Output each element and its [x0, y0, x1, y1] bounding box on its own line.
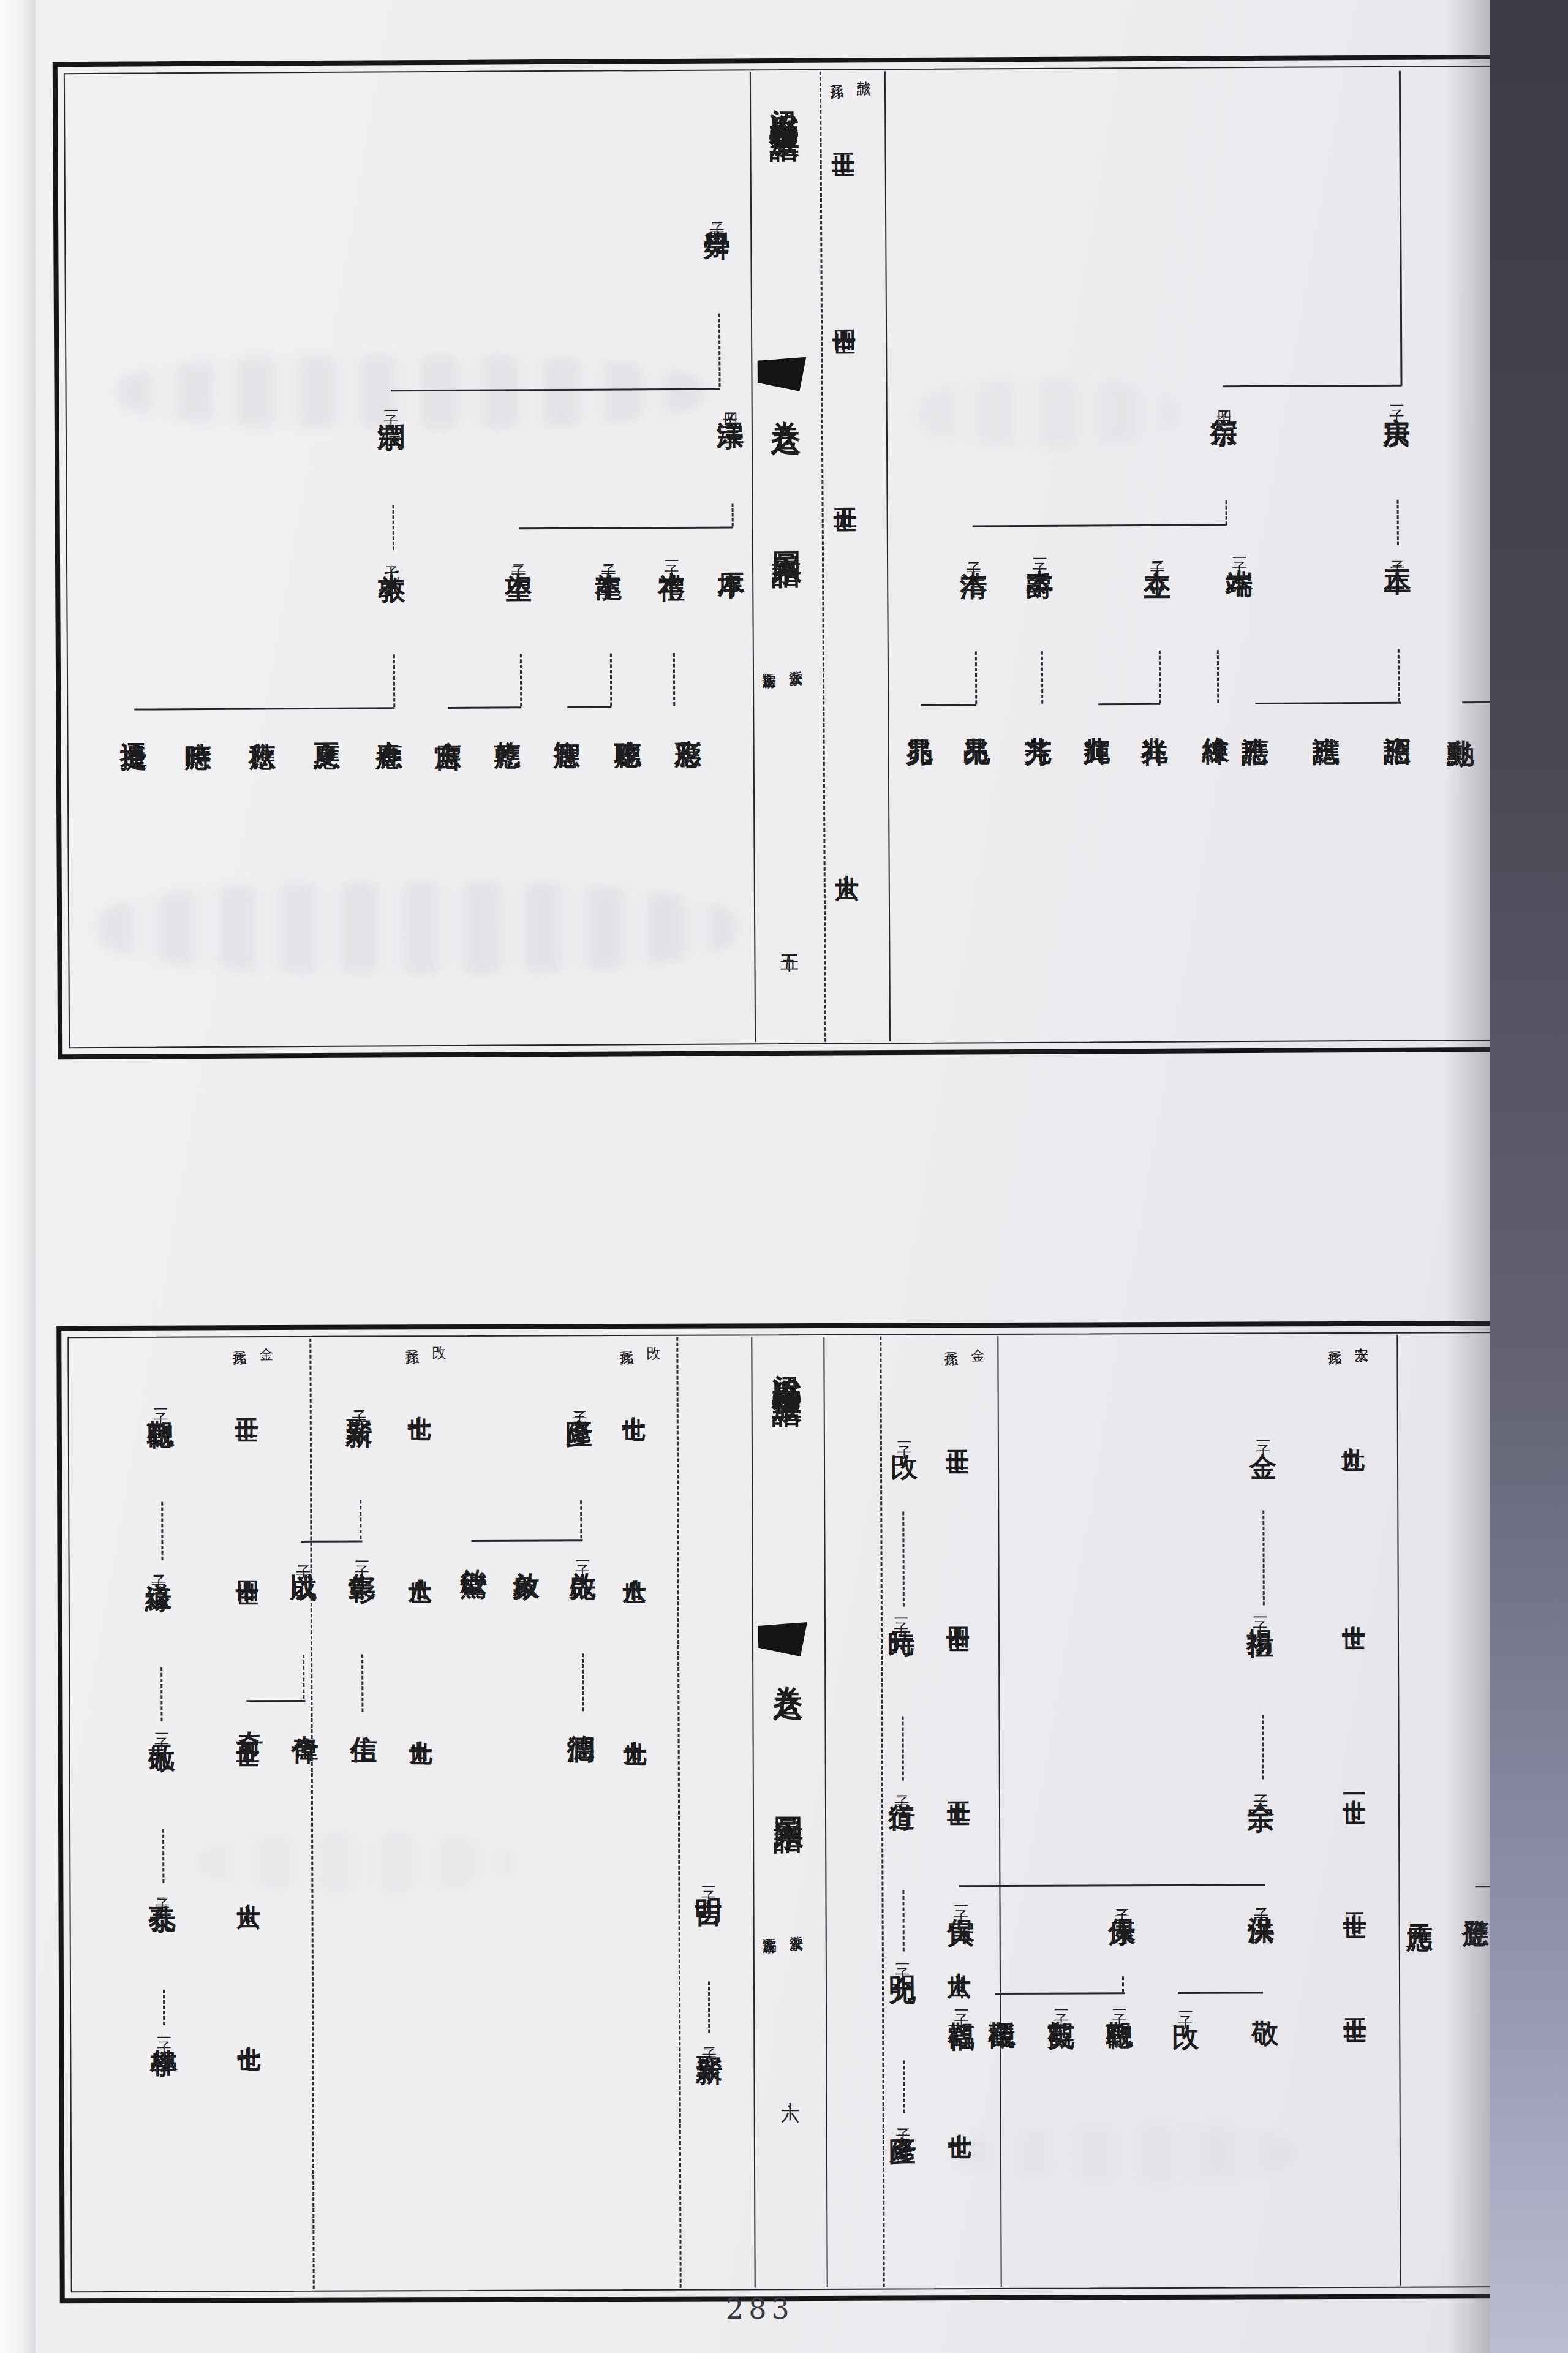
person-node: 道行子二: [888, 1782, 916, 1785]
connector-line: [880, 1337, 884, 2287]
person-name: 道行: [886, 1782, 918, 1785]
person-name: 寅保: [946, 1896, 977, 1898]
person-name: 本爵: [1025, 549, 1056, 551]
person-name: 兆芳: [1023, 716, 1054, 719]
person-name: 應夏: [311, 720, 342, 722]
person-name: 觀福: [946, 2000, 978, 2003]
person-name: 學舜: [702, 209, 733, 211]
person-name: 以成: [288, 1552, 319, 1554]
connector-line: [732, 503, 734, 526]
connector-line: [519, 526, 733, 529]
generation-label: 十七世: [233, 2027, 264, 2031]
connector-line: [961, 1977, 963, 1998]
generation-label: 十五世: [232, 1723, 263, 1727]
person-name: 維棟: [1200, 715, 1232, 717]
connector-line: [1217, 650, 1219, 703]
person-node: 本龍子二: [594, 551, 623, 553]
person-name: 金: [1248, 1432, 1279, 1433]
person-node: 應詔: [1382, 714, 1411, 717]
person-name: 應詔: [1382, 714, 1413, 717]
connector-line: [582, 1653, 584, 1711]
person-node: 宗澤子四: [716, 399, 745, 401]
connector-line: [360, 1500, 361, 1539]
person-name: 本龍: [594, 551, 625, 553]
person-name: 本禮: [657, 551, 688, 553]
branch-labels: 永安公派 長房馮家庄: [753, 660, 823, 660]
connector-line: [448, 706, 521, 709]
person-name: 應誥: [1240, 715, 1271, 717]
person-node: 應誥: [1240, 715, 1269, 717]
person-name: 本立: [1142, 548, 1174, 551]
person-name: 本端: [1224, 548, 1256, 550]
person-node: 啟鸞: [459, 1547, 488, 1550]
person-name: 集彰: [347, 1551, 378, 1554]
person-name: 應秋: [247, 720, 278, 722]
title-column: 梁氏崇桂堂族譜 卷之八 圖系譜 永安公派 長房馮家庄 十五: [750, 70, 824, 1044]
connector-line: [309, 1339, 314, 2289]
person-name: 應智: [551, 719, 582, 721]
person-name: 全宗: [1245, 1781, 1276, 1783]
person-name: 攺: [1170, 2003, 1202, 2004]
person-node: 學舜子二: [703, 209, 731, 211]
person-node: 兆輝: [1082, 716, 1111, 718]
person-node: 聚新子二: [345, 1397, 374, 1400]
person-node: 觀聰子一: [146, 1399, 175, 1402]
person-node: 本敦子七: [377, 552, 406, 554]
person-node: 觀聰子一: [1105, 2000, 1134, 2002]
generation-label: 十八世: [404, 1560, 435, 1563]
person-node: 應春: [374, 719, 403, 722]
connector-line: [903, 2060, 905, 2113]
connector-line: [471, 1539, 582, 1542]
generation-label: 十三世: [827, 133, 858, 137]
person-name: 奇: [235, 1710, 266, 1711]
person-node: 應時: [183, 720, 212, 723]
connector-line: [1226, 500, 1227, 525]
generation-label: 十六世: [943, 1954, 974, 1957]
connector-line: [1122, 1976, 1124, 1992]
person-node: 本爵子一: [1025, 549, 1054, 551]
person-node: 觀福子一: [947, 2000, 976, 2003]
person-name: 宗澤: [715, 399, 746, 401]
connector-line: [391, 388, 720, 392]
person-node: 林學子一: [149, 2028, 178, 2030]
person-node: 應秋: [247, 720, 276, 722]
connector-line: [718, 314, 721, 387]
generation-label: 十三世: [941, 1430, 973, 1434]
connector-line: [959, 1884, 1265, 1887]
person-node: 信生: [349, 1714, 378, 1717]
person-node: 宗庚子一: [1382, 396, 1411, 398]
person-node: 觀英子一: [1047, 2000, 1076, 2003]
person-node: 敬: [1251, 1999, 1280, 2000]
person-name: 兆祥: [1139, 716, 1170, 718]
person-name: 宗衍: [1208, 396, 1240, 399]
person-name: 德潤: [565, 1713, 597, 1716]
person-node: 兆芳: [1023, 716, 1052, 719]
person-node: 應宙: [433, 719, 462, 722]
page-curve-shadow: [1445, 0, 1494, 2353]
person-node: 孔泰子二: [148, 1885, 176, 1887]
person-node: 兆昂: [962, 716, 991, 719]
connector-line: [162, 1829, 164, 1883]
connector-line: [610, 653, 612, 706]
person-name: 宗庚: [1381, 396, 1412, 398]
generation-label: 十二世: [1338, 1895, 1370, 1898]
connector-line: [393, 505, 394, 550]
person-node: 彥隆子三: [565, 1397, 594, 1400]
person-node: 本正子三: [1383, 547, 1412, 550]
connector-line: [520, 654, 522, 706]
connector-line: [1041, 651, 1043, 704]
generation-label: 十三世: [1339, 1999, 1370, 2003]
person-name: 彥隆: [888, 2115, 919, 2117]
connector-line: [160, 1667, 162, 1721]
leaf-number: 十六: [777, 2088, 802, 2090]
connector-line: [902, 1511, 905, 1606]
connector-line: [301, 1541, 362, 1543]
connector-line: [902, 1716, 903, 1780]
book-title: 梁氏崇桂堂族譜: [767, 1350, 807, 1376]
person-node: 本禮子一: [657, 551, 686, 553]
person-name: 應宙: [432, 719, 464, 722]
person-name: 啟象: [511, 1551, 542, 1554]
person-node: 維棟: [1201, 715, 1230, 717]
connector-line: [1178, 1992, 1263, 1993]
generation-label: 十九世: [619, 1722, 650, 1726]
person-name: 彥隆: [564, 1397, 595, 1400]
person-name: 兆昴: [904, 717, 935, 719]
generation-label: 十四世: [828, 311, 859, 314]
volume-pennant-icon: [758, 1622, 807, 1656]
person-name: 攺: [889, 1433, 920, 1434]
person-node: 兆昴: [905, 717, 933, 719]
connector-line: [673, 653, 675, 706]
person-name: 宗潤: [375, 401, 407, 403]
generation-label: 十七世: [618, 1397, 649, 1401]
person-node: 兆祥: [1140, 716, 1169, 718]
person-node: 本端子一: [1225, 548, 1254, 550]
person-node: 本清子二: [959, 549, 988, 551]
connector-line: [134, 707, 394, 710]
person-name: 觀穩: [987, 2000, 1018, 2003]
person-name: 時元: [886, 1608, 917, 1611]
person-node: 應夏: [312, 720, 341, 722]
volume-label: 卷之八: [767, 398, 806, 405]
person-name: 孔泰: [147, 1885, 178, 1887]
person-name: 奇偉: [290, 1715, 321, 1717]
person-name: 揚祖: [1245, 1607, 1276, 1609]
person-node: 應試: [1311, 714, 1340, 717]
person-name: 本正: [1382, 547, 1414, 550]
person-name: 明允: [887, 1954, 918, 1956]
person-node: 本立子二: [1143, 548, 1172, 551]
person-node: 啟象: [512, 1551, 541, 1554]
person-node: 宗衍子四: [1210, 396, 1238, 399]
person-node: 遷捷: [119, 720, 148, 723]
connector-line: [1098, 703, 1160, 706]
person-name: 應彩: [673, 718, 704, 720]
connector-line: [246, 1700, 305, 1702]
person-name: 應乾: [492, 719, 523, 721]
person-name: 應時: [183, 720, 214, 723]
person-node: 揚祖子一: [1246, 1607, 1275, 1609]
connector-line: [303, 1655, 304, 1699]
person-node: 觀穩: [987, 2000, 1016, 2003]
generation-label: 十五世: [829, 488, 860, 492]
person-node: 彥隆子三: [889, 2115, 918, 2117]
person-node: 德潤: [566, 1713, 595, 1716]
connector-line: [997, 1336, 1001, 2287]
connector-line: [163, 1990, 165, 2025]
person-node: 應元: [1405, 1902, 1434, 1904]
generation-label: 十四世: [232, 1562, 263, 1565]
connector-line: [567, 706, 611, 708]
scanned-book-page: 梁氏崇桂堂族譜 卷之八 圖系譜 永安公派 長房馮家庄 十五 乾誠元孫十三世十四世…: [0, 0, 1568, 2353]
connector-line: [161, 1502, 163, 1560]
person-name: 元敬: [146, 1724, 178, 1726]
person-node: 應乾: [492, 719, 521, 721]
person-name: 應元: [1404, 1902, 1435, 1904]
connector-line: [902, 1890, 904, 1951]
person-name: 觀聰: [1104, 2000, 1136, 2002]
chart-label: 圖系譜: [769, 1794, 809, 1801]
person-node: 聚新子二: [695, 2034, 723, 2037]
book-spine-background: [1490, 0, 1568, 2353]
page-left-edge: [0, 0, 36, 2353]
person-node: 宗潤子一: [377, 401, 405, 403]
person-node: 應彩: [673, 718, 702, 720]
generation-label: 十七世: [404, 1397, 435, 1400]
generation-label: 十三世: [231, 1399, 262, 1402]
person-name: 啟先: [567, 1550, 598, 1553]
connector-line: [1159, 651, 1161, 703]
person-node: 應智: [552, 719, 581, 721]
person-name: 信生: [349, 1714, 380, 1717]
generation-label: 十七世: [944, 2115, 975, 2118]
person-node: 明吉子一: [694, 1877, 723, 1879]
generation-label: 十五世: [943, 1782, 974, 1786]
person-node: 啟先子一: [568, 1550, 597, 1553]
person-name: 林學: [149, 2028, 180, 2030]
connector-line: [1262, 1715, 1264, 1779]
person-name: 觀英: [1046, 2000, 1077, 2002]
generation-label: 九世: [1337, 1429, 1368, 1432]
title-column: 梁氏崇桂堂族譜 卷之八 圖系譜 永安公派 長房馮家庄 十六: [751, 1335, 826, 2289]
person-node: 集彰子一: [348, 1551, 377, 1554]
person-name: 本清: [959, 549, 990, 551]
person-name: 本敦: [377, 552, 408, 554]
connector-line: [1396, 1335, 1401, 2286]
person-node: 道緣子二: [145, 1562, 173, 1565]
page-number: 283: [726, 2292, 794, 2325]
connector-line: [921, 704, 976, 706]
generation-label: 十世: [1338, 1607, 1369, 1609]
connector-line: [1397, 500, 1399, 545]
connector-line: [580, 1500, 582, 1538]
connector-line: [676, 1337, 681, 2288]
person-node: 以成子二: [289, 1552, 318, 1554]
person-node: 寅保子一: [946, 1896, 975, 1898]
connector-line: [1262, 1510, 1265, 1605]
connector-line: [1399, 71, 1403, 386]
person-name: 敬: [1250, 1999, 1281, 2000]
person-name: 聚新: [694, 2034, 725, 2037]
connector-line: [884, 71, 891, 1041]
person-node: 攺子一: [1171, 2003, 1200, 2004]
person-name: 康保: [1107, 1895, 1138, 1898]
connector-line: [1255, 702, 1401, 704]
person-name: 應聰: [612, 718, 644, 720]
person-name: 應試: [1311, 714, 1342, 717]
person-node: 金子一: [1249, 1432, 1278, 1433]
generation-label: 十六世: [831, 856, 862, 859]
person-node: 奇: [235, 1710, 264, 1711]
connector-line: [708, 1982, 710, 2033]
chart-label: 圖系譜: [767, 529, 807, 536]
volume-pennant-icon: [757, 357, 806, 391]
person-node: 攺子一: [890, 1433, 919, 1434]
person-node: 時元子一: [887, 1608, 916, 1611]
person-name: 本望: [503, 551, 535, 554]
person-name: 聚新: [344, 1397, 375, 1399]
person-node: 洪保子二: [1246, 1895, 1275, 1897]
connector-line: [975, 651, 977, 704]
connector-line: [1223, 385, 1402, 388]
person-name: 洪保: [1246, 1895, 1277, 1897]
person-name: 本厚: [716, 550, 747, 553]
person-node: 本望子二: [504, 551, 533, 554]
person-name: 啟鸞: [458, 1547, 489, 1550]
person-name: 道緣: [143, 1562, 175, 1565]
generation-label: 十一世: [1338, 1781, 1370, 1785]
genealogy-table-bottom: 梁氏崇桂堂族譜 卷之八 圖系譜 永安公派 長房馮家庄 十六 永安元孫金元孫攺元孫…: [56, 1321, 1568, 2304]
generation-label: 十四世: [942, 1608, 973, 1612]
book-title: 梁氏崇桂堂族譜: [765, 85, 804, 111]
generation-label: 十八世: [619, 1560, 650, 1564]
person-name: 明吉: [693, 1877, 725, 1879]
person-node: 元敬子一: [147, 1724, 176, 1726]
person-name: 兆輝: [1082, 716, 1113, 718]
genealogy-table-top: 梁氏崇桂堂族譜 卷之八 圖系譜 永安公派 長房馮家庄 十五 乾誠元孫十三世十四世…: [53, 55, 1518, 1059]
connector-line: [393, 654, 395, 707]
person-name: 兆昂: [962, 716, 993, 719]
person-node: 應聰: [613, 718, 642, 720]
person-name: 觀聰: [145, 1399, 176, 1402]
volume-label: 卷之八: [769, 1663, 808, 1670]
connector-line: [995, 1992, 1125, 1995]
generation-label: 十六世: [232, 1884, 263, 1888]
person-node: 全宗子三: [1246, 1781, 1275, 1783]
generation-label: 十九世: [404, 1721, 435, 1725]
connector-line: [1398, 649, 1400, 702]
connector-line: [973, 524, 1227, 527]
person-node: 明允子一: [888, 1954, 917, 1956]
person-node: 奇偉: [290, 1715, 319, 1717]
person-node: 康保子三: [1107, 1895, 1136, 1898]
person-name: 遷捷: [118, 720, 149, 723]
person-name: 應春: [374, 719, 405, 722]
person-node: 本厚: [717, 550, 745, 553]
connector-line: [361, 1655, 363, 1712]
leaf-number: 十五: [777, 939, 802, 942]
